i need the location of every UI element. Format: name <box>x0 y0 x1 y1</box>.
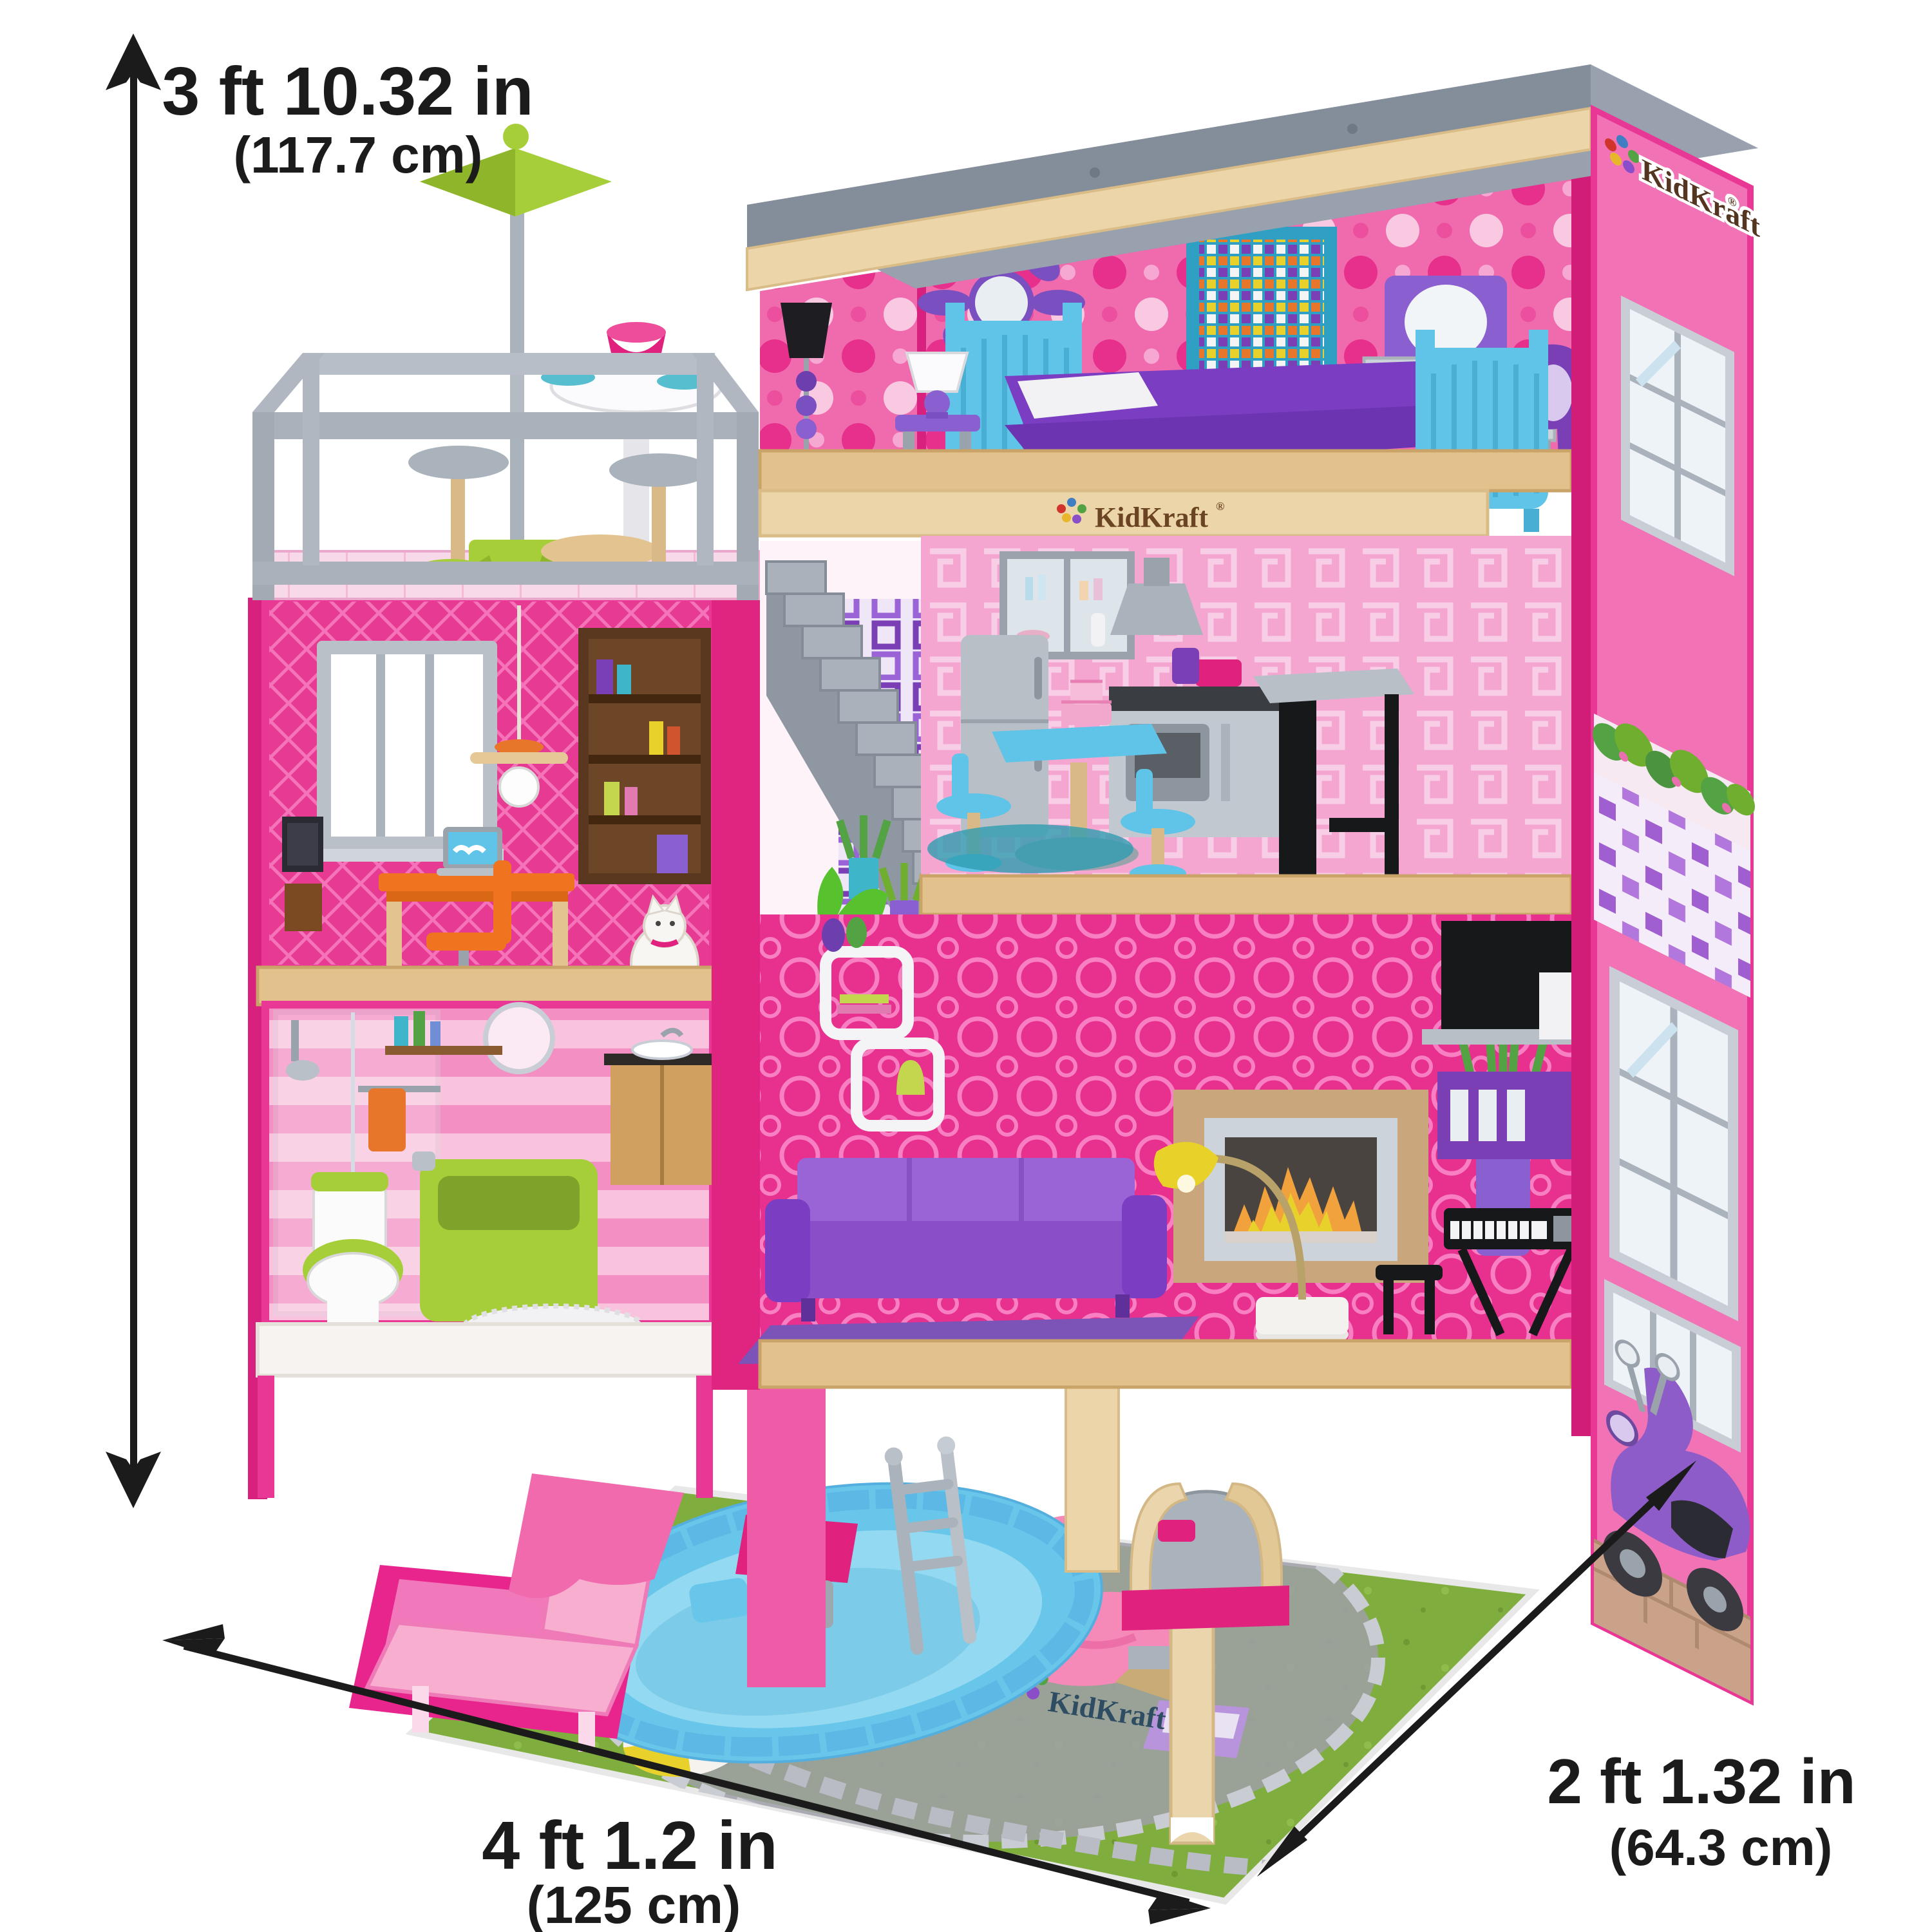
bathroom-floor <box>258 1324 713 1376</box>
living-room <box>738 914 1592 1364</box>
tower-right-edge <box>712 598 760 1390</box>
rooftop-patio <box>252 124 759 600</box>
height-label-metric: (117.7 cm) <box>234 126 483 184</box>
bar-shelf <box>1437 1072 1571 1159</box>
brand-text-beam: KidKraft <box>1095 502 1208 533</box>
depth-label-metric: (64.3 cm) <box>1609 1819 1833 1876</box>
tower-leg-right <box>696 1376 713 1498</box>
depth-label-imperial: 2 ft 1.32 in <box>1547 1746 1855 1817</box>
bathroom-vanity <box>604 1030 720 1185</box>
sofa <box>738 1158 1199 1364</box>
office-floor <box>258 967 713 1005</box>
product-dimension-image: KidKraft ® <box>0 0 1932 1932</box>
left-tower <box>248 551 760 1499</box>
bathtub <box>412 1151 598 1321</box>
bathroom-room <box>265 1005 720 1350</box>
umbrella-icon <box>420 124 612 580</box>
living-room-floor <box>760 1341 1571 1387</box>
brand-registered-beam: ® <box>1216 500 1224 513</box>
tower-leg-left <box>258 1376 274 1498</box>
height-label-imperial: 3 ft 10.32 in <box>162 53 533 129</box>
bathroom-mirror <box>486 1005 553 1072</box>
support-wall <box>747 1385 826 1687</box>
width-label-metric: (125 cm) <box>527 1876 741 1932</box>
mailbox-box <box>1122 1484 1289 1631</box>
office-bookshelf <box>578 628 711 884</box>
support-post <box>1066 1385 1119 1571</box>
kitchen-floor <box>921 876 1571 914</box>
mailbox-flag <box>1158 1520 1195 1542</box>
right-side-wall: KidKraft ® <box>1593 109 1761 1706</box>
kitchen-rug <box>927 824 1133 873</box>
kitchen <box>921 536 1571 882</box>
dollhouse-illustration: KidKraft ® <box>0 0 1932 1932</box>
width-label-imperial: 4 ft 1.2 in <box>482 1808 777 1884</box>
height-arrow <box>106 33 161 1508</box>
tv-nook <box>1422 921 1584 1045</box>
dollhouse: KidKraft ® <box>248 64 1761 1706</box>
office-room <box>265 598 757 1005</box>
cooking-pot <box>1195 659 1242 687</box>
bedroom-floor <box>760 451 1571 491</box>
tall-pot <box>1172 648 1199 684</box>
